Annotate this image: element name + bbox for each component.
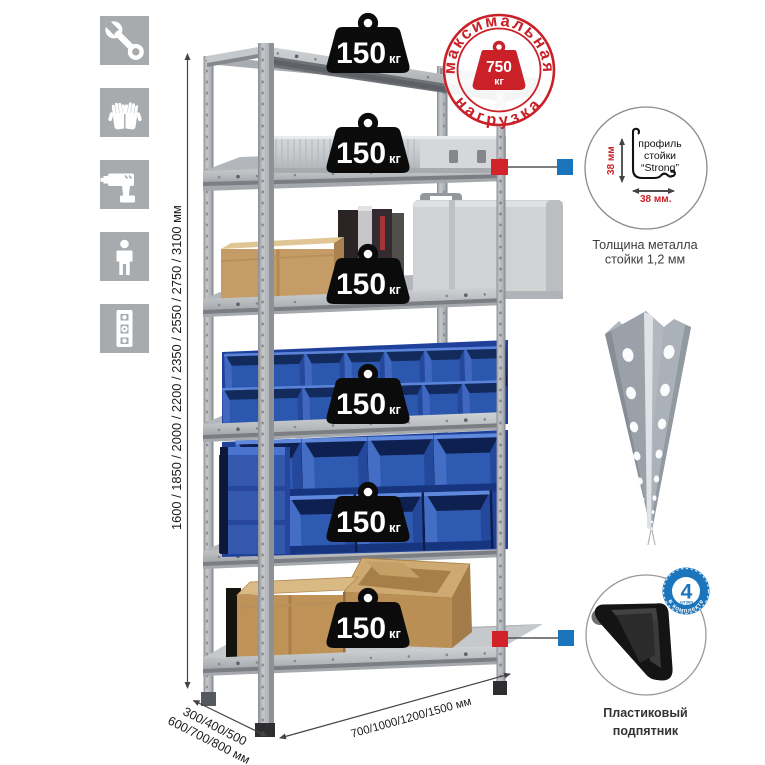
svg-text:Пластиковый: Пластиковый [603,706,687,720]
svg-text:профиль: профиль [638,138,682,150]
svg-text:штуки: штуки [680,600,693,605]
svg-text:“Strong”: “Strong” [641,162,679,174]
svg-text:Толщина металла: Толщина металла [592,238,697,252]
svg-text:1600 / 1850 / 2000 / 2200 / 23: 1600 / 1850 / 2000 / 2200 / 2350 / 2550 … [169,205,184,530]
svg-text:750: 750 [486,59,512,76]
svg-text:подпятник: подпятник [613,724,679,738]
svg-text:стойки: стойки [644,150,676,162]
svg-text:кг: кг [494,76,504,88]
svg-text:38 мм.: 38 мм. [640,194,672,205]
svg-text:38 мм: 38 мм [606,146,617,175]
svg-text:стойки 1,2 мм: стойки 1,2 мм [605,253,685,267]
